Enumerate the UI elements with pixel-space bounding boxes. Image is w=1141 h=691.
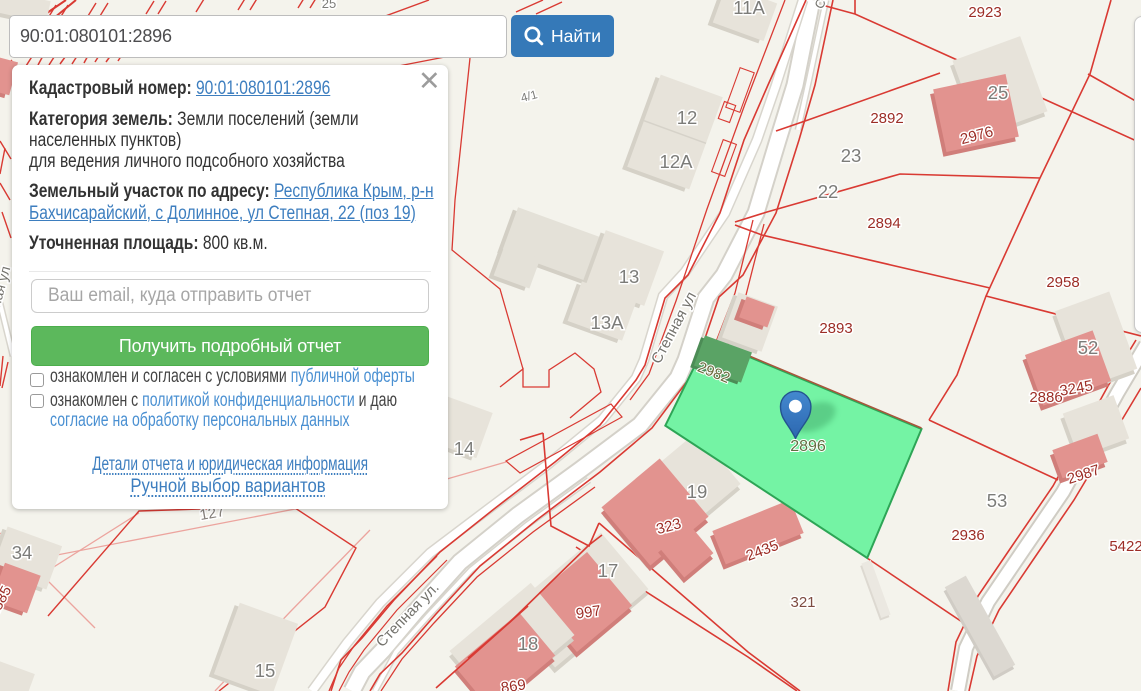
- svg-text:25: 25: [322, 0, 336, 11]
- svg-text:18: 18: [518, 633, 539, 654]
- svg-text:12А: 12А: [660, 151, 694, 172]
- svg-text:14: 14: [454, 438, 475, 459]
- svg-text:12: 12: [677, 107, 698, 128]
- svg-text:321: 321: [790, 594, 815, 611]
- svg-text:2958: 2958: [1046, 274, 1079, 291]
- svg-text:22: 22: [818, 181, 839, 202]
- svg-text:15: 15: [255, 660, 276, 681]
- svg-text:19: 19: [687, 481, 708, 502]
- svg-text:2896: 2896: [790, 438, 826, 455]
- svg-text:997: 997: [575, 602, 602, 622]
- svg-text:13А: 13А: [591, 312, 625, 333]
- svg-text:17: 17: [598, 560, 619, 581]
- svg-text:2892: 2892: [870, 110, 903, 127]
- svg-text:2936: 2936: [951, 527, 984, 544]
- svg-text:2886: 2886: [1029, 389, 1062, 406]
- svg-text:23: 23: [841, 145, 862, 166]
- svg-text:2923: 2923: [968, 4, 1001, 21]
- svg-text:52: 52: [1078, 337, 1099, 358]
- svg-text:13: 13: [619, 266, 640, 287]
- svg-text:53: 53: [987, 490, 1008, 511]
- svg-text:869: 869: [500, 676, 527, 691]
- svg-text:34: 34: [12, 542, 33, 563]
- svg-text:2893: 2893: [819, 320, 852, 337]
- svg-text:5422: 5422: [1109, 538, 1141, 555]
- svg-text:2894: 2894: [867, 215, 900, 232]
- svg-text:25: 25: [988, 82, 1009, 103]
- svg-text:11А: 11А: [733, 0, 765, 18]
